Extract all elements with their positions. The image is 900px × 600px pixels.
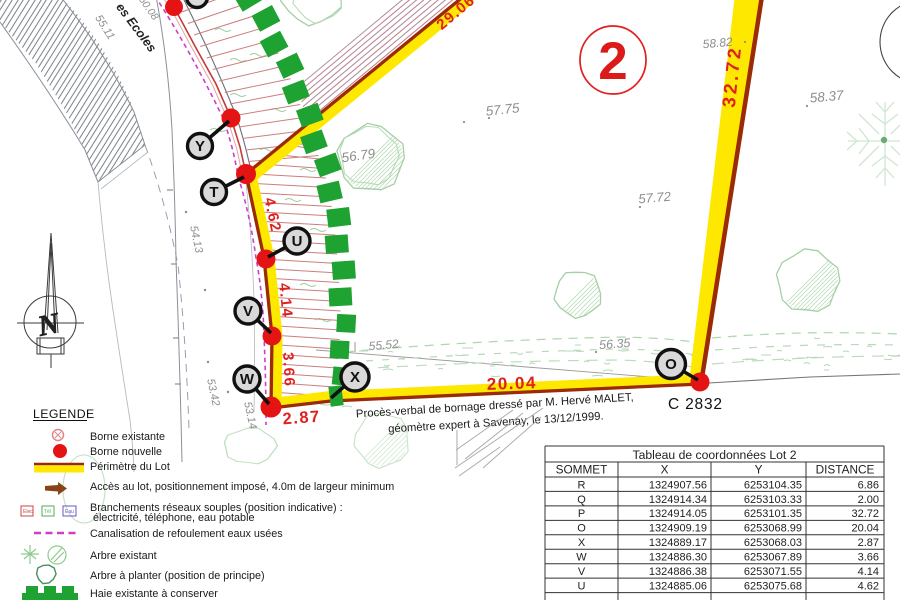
svg-text:LEGENDE: LEGENDE <box>33 407 95 421</box>
svg-text:SOMMET: SOMMET <box>556 463 608 477</box>
svg-text:1324889.17: 1324889.17 <box>649 537 707 549</box>
svg-text:6253068.03: 6253068.03 <box>744 537 802 549</box>
svg-text:Y: Y <box>195 138 205 155</box>
svg-text:32.72: 32.72 <box>851 508 879 520</box>
svg-text:20.04: 20.04 <box>486 373 537 394</box>
svg-text:1324909.19: 1324909.19 <box>649 523 707 535</box>
svg-text:54.13: 54.13 <box>187 225 205 255</box>
svg-text:2.87: 2.87 <box>282 408 321 429</box>
svg-text:1324907.56: 1324907.56 <box>649 479 707 491</box>
svg-text:Elec: Elec <box>23 509 33 515</box>
svg-text:53.14: 53.14 <box>241 401 258 430</box>
svg-text:56.79: 56.79 <box>341 146 377 166</box>
svg-text:C 2832: C 2832 <box>668 396 723 413</box>
svg-text:Périmètre du Lot: Périmètre du Lot <box>90 461 170 473</box>
svg-text:Arbre à planter (position de p: Arbre à planter (position de principe) <box>90 570 265 582</box>
svg-text:T: T <box>209 184 218 201</box>
svg-text:2: 2 <box>598 32 627 91</box>
svg-text:Tableau de coordonnées Lot 2: Tableau de coordonnées Lot 2 <box>633 448 797 462</box>
svg-text:4.62: 4.62 <box>858 580 879 592</box>
svg-text:29.06: 29.06 <box>433 0 478 34</box>
svg-text:DISTANCE: DISTANCE <box>816 463 875 477</box>
svg-text:1324885.06: 1324885.06 <box>649 580 707 592</box>
svg-text:X: X <box>578 537 586 549</box>
svg-text:O: O <box>665 356 677 373</box>
svg-text:V: V <box>578 566 586 578</box>
svg-text:6253068.99: 6253068.99 <box>744 523 802 535</box>
svg-text:6253067.89: 6253067.89 <box>744 552 802 564</box>
svg-text:58.82: 58.82 <box>702 35 733 52</box>
svg-text:Canalisation de refoulement ea: Canalisation de refoulement eaux usées <box>90 528 283 540</box>
svg-text:Borne existante: Borne existante <box>90 431 165 443</box>
svg-text:6.86: 6.86 <box>858 479 879 491</box>
svg-text:U: U <box>578 580 586 592</box>
svg-text:électricité, téléphone, eau po: électricité, téléphone, eau potable <box>93 512 254 524</box>
svg-text:53.42: 53.42 <box>204 378 221 407</box>
svg-text:W: W <box>576 552 587 564</box>
svg-text:1324886.38: 1324886.38 <box>649 566 707 578</box>
svg-text:Eau: Eau <box>65 509 74 515</box>
svg-text:O: O <box>577 523 586 535</box>
svg-text:V: V <box>243 303 253 320</box>
svg-text:56.35: 56.35 <box>599 336 631 352</box>
svg-text:3.66: 3.66 <box>279 352 298 388</box>
svg-text:W: W <box>240 371 255 388</box>
svg-text:1324886.30: 1324886.30 <box>649 552 707 564</box>
svg-text:6253101.35: 6253101.35 <box>744 508 802 520</box>
svg-text:6253104.35: 6253104.35 <box>744 479 802 491</box>
svg-text:57.72: 57.72 <box>638 189 672 207</box>
svg-text:Accès au lot, positionnement i: Accès au lot, positionnement imposé, 4.0… <box>90 481 394 493</box>
svg-text:Borne nouvelle: Borne nouvelle <box>90 446 162 458</box>
svg-text:55.52: 55.52 <box>368 337 399 354</box>
svg-text:U: U <box>292 233 303 250</box>
svg-text:57.75: 57.75 <box>485 100 521 119</box>
svg-text:1324914.34: 1324914.34 <box>649 494 707 506</box>
svg-text:X: X <box>350 369 360 386</box>
svg-text:58.37: 58.37 <box>809 88 844 106</box>
svg-text:20.04: 20.04 <box>851 523 879 535</box>
svg-text:4.14: 4.14 <box>858 566 879 578</box>
svg-text:1324914.05: 1324914.05 <box>649 508 707 520</box>
svg-text:Tél: Tél <box>44 509 51 515</box>
svg-text:3.66: 3.66 <box>858 552 879 564</box>
svg-text:6253071.55: 6253071.55 <box>744 566 802 578</box>
svg-text:X: X <box>661 463 669 477</box>
svg-text:2.87: 2.87 <box>858 537 879 549</box>
svg-text:Haie existante à conserver: Haie existante à conserver <box>90 588 218 600</box>
svg-text:Y: Y <box>755 463 763 477</box>
svg-text:R: R <box>578 479 586 491</box>
svg-text:6253103.33: 6253103.33 <box>744 494 802 506</box>
svg-text:Arbre existant: Arbre existant <box>90 550 157 562</box>
svg-text:6253075.68: 6253075.68 <box>744 580 802 592</box>
svg-text:Q: Q <box>577 494 586 506</box>
svg-text:2.00: 2.00 <box>858 494 879 506</box>
svg-text:55.11: 55.11 <box>92 13 116 42</box>
svg-text:P: P <box>578 508 585 520</box>
